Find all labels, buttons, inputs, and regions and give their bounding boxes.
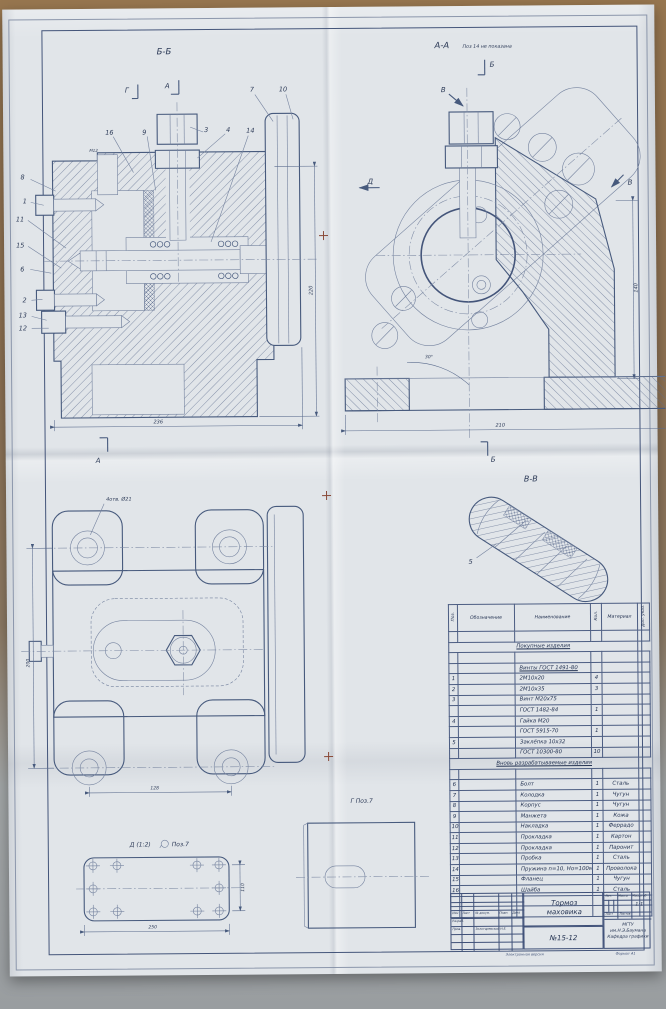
callout-6: 6 xyxy=(20,265,24,273)
sheet-footer: Электронная версия Формат А1 xyxy=(451,950,651,961)
spec-cell-note xyxy=(638,672,650,683)
spec-header-qty: Кол. xyxy=(590,603,601,630)
spec-cell-material: Чугун xyxy=(603,800,639,811)
spec-cell-note xyxy=(638,630,650,641)
view-a-a: А-А Поз 14 не показана xyxy=(334,28,665,471)
spec-cell-note xyxy=(638,683,650,694)
lobe-bl xyxy=(54,701,125,776)
spec-cell-designation xyxy=(459,811,516,822)
label-doc: № докум. xyxy=(475,912,490,915)
spec-cell-material xyxy=(602,694,638,705)
base-plate xyxy=(84,857,229,921)
drawing-sheet: Б-Б М12 xyxy=(2,4,662,976)
spec-cell-material xyxy=(602,704,638,715)
spec-cell-name: Гайка М20 xyxy=(515,715,591,726)
svg-text:В: В xyxy=(441,86,446,94)
spec-cell-designation xyxy=(459,748,516,759)
spec-cell-qty xyxy=(591,662,602,673)
spec-cell-pos: 12 xyxy=(450,843,459,854)
callout-16: 16 xyxy=(105,129,113,137)
spec-cell-name: Манжета xyxy=(516,811,592,822)
spec-cell-qty: 1 xyxy=(592,832,603,843)
spec-cell-material: Чугун xyxy=(603,789,639,800)
hex-head xyxy=(449,112,493,144)
rotated-view-icon xyxy=(160,840,169,848)
spec-cell-material: Феррадо xyxy=(603,821,639,832)
label-list2: Лист xyxy=(605,913,613,916)
spec-cell-material: Чугун xyxy=(604,874,640,885)
spec-cell-material xyxy=(603,768,639,779)
spec-cell-pos xyxy=(450,748,459,759)
spec-cell-designation xyxy=(458,663,515,674)
spec-cell-note xyxy=(639,800,651,811)
spec-cell-qty: 10 xyxy=(592,747,603,758)
spec-cell-designation xyxy=(458,673,515,684)
spec-cell-material xyxy=(602,672,638,683)
callout-12: 12 xyxy=(19,324,27,332)
spec-cell-material: Паронит xyxy=(603,842,639,853)
label-razrab: Разраб. xyxy=(452,920,464,923)
spec-cell-pos: 4 xyxy=(449,716,458,727)
spec-cell-qty: 1 xyxy=(592,821,603,832)
spec-cell-material: Сталь xyxy=(603,853,639,864)
view-mark-d: Д xyxy=(360,178,380,188)
spec-cell-note xyxy=(638,736,650,747)
spec-cell-qty: 1 xyxy=(592,842,603,853)
svg-text:А: А xyxy=(164,82,170,90)
spec-cell-pos: 10 xyxy=(450,822,459,833)
spec-cell-material xyxy=(602,630,638,641)
lobe-br xyxy=(197,700,266,775)
spec-cell-qty xyxy=(591,694,602,705)
footer-format: Формат А1 xyxy=(616,952,636,956)
spec-cell-pos xyxy=(449,706,458,717)
spec-header-pos: Поз. xyxy=(448,605,457,632)
spec-cell-pos: 8 xyxy=(450,801,459,812)
view-d: Д (1:2) Поз.7 250 110 xyxy=(48,831,299,953)
spec-cell-note xyxy=(640,874,652,885)
spec-cell-pos: 3 xyxy=(449,695,458,706)
pos-note: Поз.7 xyxy=(172,841,189,848)
svg-text:128: 128 xyxy=(150,785,159,791)
angle-dim: 30° xyxy=(407,354,469,385)
spec-cell-designation xyxy=(458,695,515,706)
spec-cell-qty: 3 xyxy=(591,683,602,694)
svg-text:Б: Б xyxy=(491,456,496,464)
spec-cell-pos xyxy=(449,653,458,664)
spec-cell-note xyxy=(638,725,650,736)
svg-text:220: 220 xyxy=(308,286,314,296)
spec-cell-material xyxy=(602,736,638,747)
view-note: Поз 14 не показана xyxy=(462,44,511,50)
spec-cell-name: Винт М20х75 xyxy=(515,694,591,705)
spec-cell-qty: 1 xyxy=(591,726,602,737)
spec-cell-material xyxy=(602,651,638,662)
label-masshtab: Масштаб xyxy=(632,895,646,898)
tapped-hole xyxy=(97,155,117,195)
label-list: Лист xyxy=(462,912,470,915)
svg-text:Б: Б xyxy=(490,61,495,69)
spec-cell-note xyxy=(639,768,651,779)
spec-cell-qty: 4 xyxy=(591,673,602,684)
org-line2: Кафедра графики xyxy=(604,935,651,941)
spec-cell-note xyxy=(639,821,651,832)
spec-cell-name xyxy=(516,768,592,779)
hidden-cavity xyxy=(91,598,244,687)
spec-cell-qty: 1 xyxy=(593,874,604,885)
pedestal-window xyxy=(92,364,184,415)
spec-cell-note xyxy=(638,662,650,673)
svg-text:200: 200 xyxy=(25,659,31,668)
flange-top-view: 4отв. Ø21 200 128 xyxy=(12,469,335,822)
brake-shoe-section xyxy=(461,489,616,610)
spec-cell-designation xyxy=(459,790,516,801)
view-title: А-А xyxy=(433,41,449,51)
spec-cell-note xyxy=(639,747,651,758)
spec-cell-designation xyxy=(458,684,515,695)
spec-cell-designation xyxy=(459,801,516,812)
hole-note: 4отв. Ø21 xyxy=(90,496,132,535)
spec-cell-designation xyxy=(459,864,516,875)
section-view-v-v: В-В 5 xyxy=(438,467,649,624)
callout-15: 15 xyxy=(16,241,24,249)
thread-label: М12 xyxy=(89,148,98,153)
section-view-b-b: Б-Б М12 xyxy=(4,31,337,469)
spec-cell-note xyxy=(638,694,650,705)
spec-cell-material: Проволока xyxy=(603,863,639,874)
spec-cell-pos xyxy=(449,632,458,643)
svg-text:30°: 30° xyxy=(425,354,433,360)
spec-cell-name: 2М10х35 xyxy=(515,683,591,694)
spec-cell-designation xyxy=(458,631,515,642)
spec-cell-pos: 5 xyxy=(449,737,458,748)
svg-text:Д: Д xyxy=(367,178,374,186)
view-title: Б-Б xyxy=(157,47,172,57)
spec-cell-qty: 1 xyxy=(592,789,603,800)
svg-text:210: 210 xyxy=(495,423,505,429)
callout-2: 2 xyxy=(22,296,26,304)
svg-text:140: 140 xyxy=(633,283,639,293)
spec-cell-pos: 14 xyxy=(450,865,459,876)
spec-cell-designation xyxy=(460,875,517,886)
svg-text:236: 236 xyxy=(153,419,163,425)
label-data: Дата xyxy=(512,912,520,915)
spec-cell-name: 2М10х20 xyxy=(515,673,591,684)
callout-10: 10 xyxy=(279,85,287,93)
view-title: Г Поз.7 xyxy=(350,798,373,805)
label-massa: Масса xyxy=(618,895,628,898)
spec-header-note: Доп. указ. xyxy=(637,603,649,630)
spec-cell-material xyxy=(603,747,639,758)
view-title: В-В xyxy=(524,474,538,483)
spec-cell-pos: 2 xyxy=(449,684,458,695)
spec-cell-pos: 11 xyxy=(450,833,459,844)
spec-cell-pos xyxy=(449,663,458,674)
spec-cell-pos: 7 xyxy=(450,790,459,801)
drawing-title-line2: маховика xyxy=(524,908,604,917)
dim-width: 250 xyxy=(84,924,229,936)
spec-cell-designation xyxy=(459,832,516,843)
spec-cell-designation xyxy=(458,652,515,663)
spec-cell-note xyxy=(639,831,651,842)
spec-cell-name: Накладка xyxy=(516,821,592,832)
dim-height: 140 xyxy=(616,201,640,379)
callout-1: 1 xyxy=(23,197,27,205)
callout-13: 13 xyxy=(19,311,27,319)
callout-11: 11 xyxy=(16,215,24,223)
spec-cell-note xyxy=(639,810,651,821)
title-block-left-grid: Изм Лист № докум. Подп. Дата Разраб. Про… xyxy=(450,893,523,951)
spec-cell-pos xyxy=(450,769,459,780)
callout-9: 9 xyxy=(142,128,146,136)
label-podp: Подп. xyxy=(499,912,508,915)
svg-text:5: 5 xyxy=(469,558,473,566)
spec-cell-name: ГОСТ 1482-84 xyxy=(515,705,591,716)
callout-5: 5 xyxy=(468,544,496,566)
housing-outline xyxy=(53,570,265,718)
spec-cell-qty: 1 xyxy=(592,779,603,790)
spec-cell-designation xyxy=(458,737,515,748)
label-lit: Лит. xyxy=(605,895,612,898)
spec-cell-qty: 1 xyxy=(592,800,603,811)
svg-text:А: А xyxy=(95,457,101,465)
spec-cell-material xyxy=(602,662,638,673)
spec-cell-name: Пружина n=10, Но=100мм xyxy=(516,864,592,875)
spec-cell-name xyxy=(515,652,591,663)
spec-cell-qty xyxy=(591,652,602,663)
spec-cell-material: Сталь xyxy=(603,778,639,789)
spec-cell-material: Картон xyxy=(603,831,639,842)
spec-cell-name: Колодка xyxy=(516,789,592,800)
spec-cell-note xyxy=(639,863,651,874)
cut-mark-b-bottom: Б xyxy=(481,442,496,464)
view-title: Д (1:2) xyxy=(129,841,151,848)
spec-cell-qty: 1 xyxy=(592,810,603,821)
checker-name: Золотаревский Н.Е. xyxy=(475,928,506,931)
spec-cell-note xyxy=(638,715,650,726)
spec-cell-material xyxy=(602,683,638,694)
spec-cell-material xyxy=(602,715,638,726)
spec-cell-designation xyxy=(458,705,515,716)
cut-mark-g: Г xyxy=(125,85,138,99)
spec-cell-name: Болт xyxy=(516,779,592,790)
spec-cell-qty xyxy=(591,715,602,726)
spec-cell-designation xyxy=(459,854,516,865)
flywheel-rim-plate xyxy=(265,113,301,345)
spec-cell-name: Прокладка xyxy=(516,832,592,843)
spec-cell-qty xyxy=(592,768,603,779)
callout-7: 7 xyxy=(250,86,255,94)
spec-cell-pos: 6 xyxy=(450,780,459,791)
photo-of-engineering-drawing: { "views": { "bb": { "title": "Б-Б", "ma… xyxy=(0,0,666,1009)
spec-cell-designation xyxy=(459,843,516,854)
mount-holes xyxy=(70,530,248,785)
spec-header-name: Наименование xyxy=(514,603,590,631)
callout-3: 3 xyxy=(204,126,208,134)
spec-cell-note xyxy=(639,842,651,853)
spec-cell-note xyxy=(639,852,651,863)
spec-cell-name: Винты ГОСТ 1491-80 xyxy=(515,662,591,673)
cut-mark-a-top: А xyxy=(164,80,179,94)
spec-header-material: Материал xyxy=(601,603,637,630)
lock-nut xyxy=(445,146,497,168)
cut-mark-b-top: Б xyxy=(478,60,495,75)
spec-cell-qty: 1 xyxy=(591,705,602,716)
spec-cell-pos xyxy=(449,727,458,738)
cut-mark-a-bottom: А xyxy=(95,438,108,465)
spec-cell-name: ГОСТ 10300-80 xyxy=(516,747,592,758)
spec-cell-designation xyxy=(458,716,515,727)
spec-cell-note xyxy=(638,704,650,715)
spec-cell-name: Заклёпка 10х32 xyxy=(515,736,591,747)
spec-cell-material xyxy=(602,725,638,736)
spec-cell-name: Фланец xyxy=(517,874,593,885)
spec-cell-designation xyxy=(459,769,516,780)
svg-text:В: В xyxy=(628,179,633,187)
pad-plate xyxy=(308,822,416,928)
spec-cell-note xyxy=(638,651,650,662)
dim-width: 128 xyxy=(89,785,231,797)
callout-14: 14 xyxy=(246,127,254,135)
spec-cell-designation xyxy=(459,779,516,790)
spec-cell-name: Прокладка xyxy=(516,842,592,853)
spec-cell-name xyxy=(515,630,591,641)
footer-version: Электронная версия xyxy=(506,952,544,956)
svg-text:110: 110 xyxy=(240,883,246,892)
spec-cell-designation xyxy=(458,726,515,737)
spec-cell-material: Кожа xyxy=(603,810,639,821)
right-foot xyxy=(544,376,666,409)
flywheel-plate-side xyxy=(267,506,305,762)
view-mark-v-left: В xyxy=(441,86,463,106)
bracket-gusset xyxy=(495,137,615,378)
spec-cell-note xyxy=(639,778,651,789)
label-izm: Изм xyxy=(452,912,458,915)
spec-cell-pos: 1 xyxy=(449,674,458,685)
label-listov: Листов xyxy=(619,913,630,916)
spec-body: Покупные изделияВинты ГОСТ 1491-8012М10х… xyxy=(449,630,652,918)
title-block: Изм Лист № докум. Подп. Дата Разраб. Про… xyxy=(450,892,650,951)
drawing-title-cell: Тормоз маховика xyxy=(523,892,603,927)
org-line1: МГТУ им.Н.Э.Баумана xyxy=(604,923,651,935)
spec-cell-name: Пробка xyxy=(516,853,592,864)
spec-cell-qty xyxy=(591,736,602,747)
label-prov: Пров. xyxy=(452,928,461,931)
spec-cell-qty: 1 xyxy=(592,853,603,864)
svg-text:Г: Г xyxy=(125,87,130,95)
spec-cell-pos: 9 xyxy=(450,812,459,823)
callout-8: 8 xyxy=(21,173,25,181)
spec-cell-qty xyxy=(591,630,602,641)
title-block-right: Лит. Масса Масштаб 1:1 Лист Листов МГТУ … xyxy=(603,892,650,949)
specification-table: Поз. Обозначение Наименование Кол. Матер… xyxy=(448,603,652,919)
svg-text:4отв. Ø21: 4отв. Ø21 xyxy=(106,496,132,503)
scale-value: 1:1 xyxy=(635,903,643,908)
spec-header-designation: Обозначение xyxy=(457,604,514,631)
spec-cell-designation xyxy=(459,822,516,833)
callout-4: 4 xyxy=(226,126,230,134)
svg-text:250: 250 xyxy=(148,924,157,930)
dim-width: 210 xyxy=(345,412,665,435)
spec-cell-note xyxy=(639,789,651,800)
spec-cell-pos: 13 xyxy=(450,854,459,865)
view-g: Г Поз.7 xyxy=(295,788,451,954)
spec-cell-name: Корпус xyxy=(516,800,592,811)
spec-cell-qty: 1 xyxy=(592,863,603,874)
doc-number-cell: №15-12 xyxy=(523,926,603,950)
spec-cell-pos: 15 xyxy=(451,875,460,886)
spec-cell-name: ГОСТ 5915-70 xyxy=(515,726,591,737)
